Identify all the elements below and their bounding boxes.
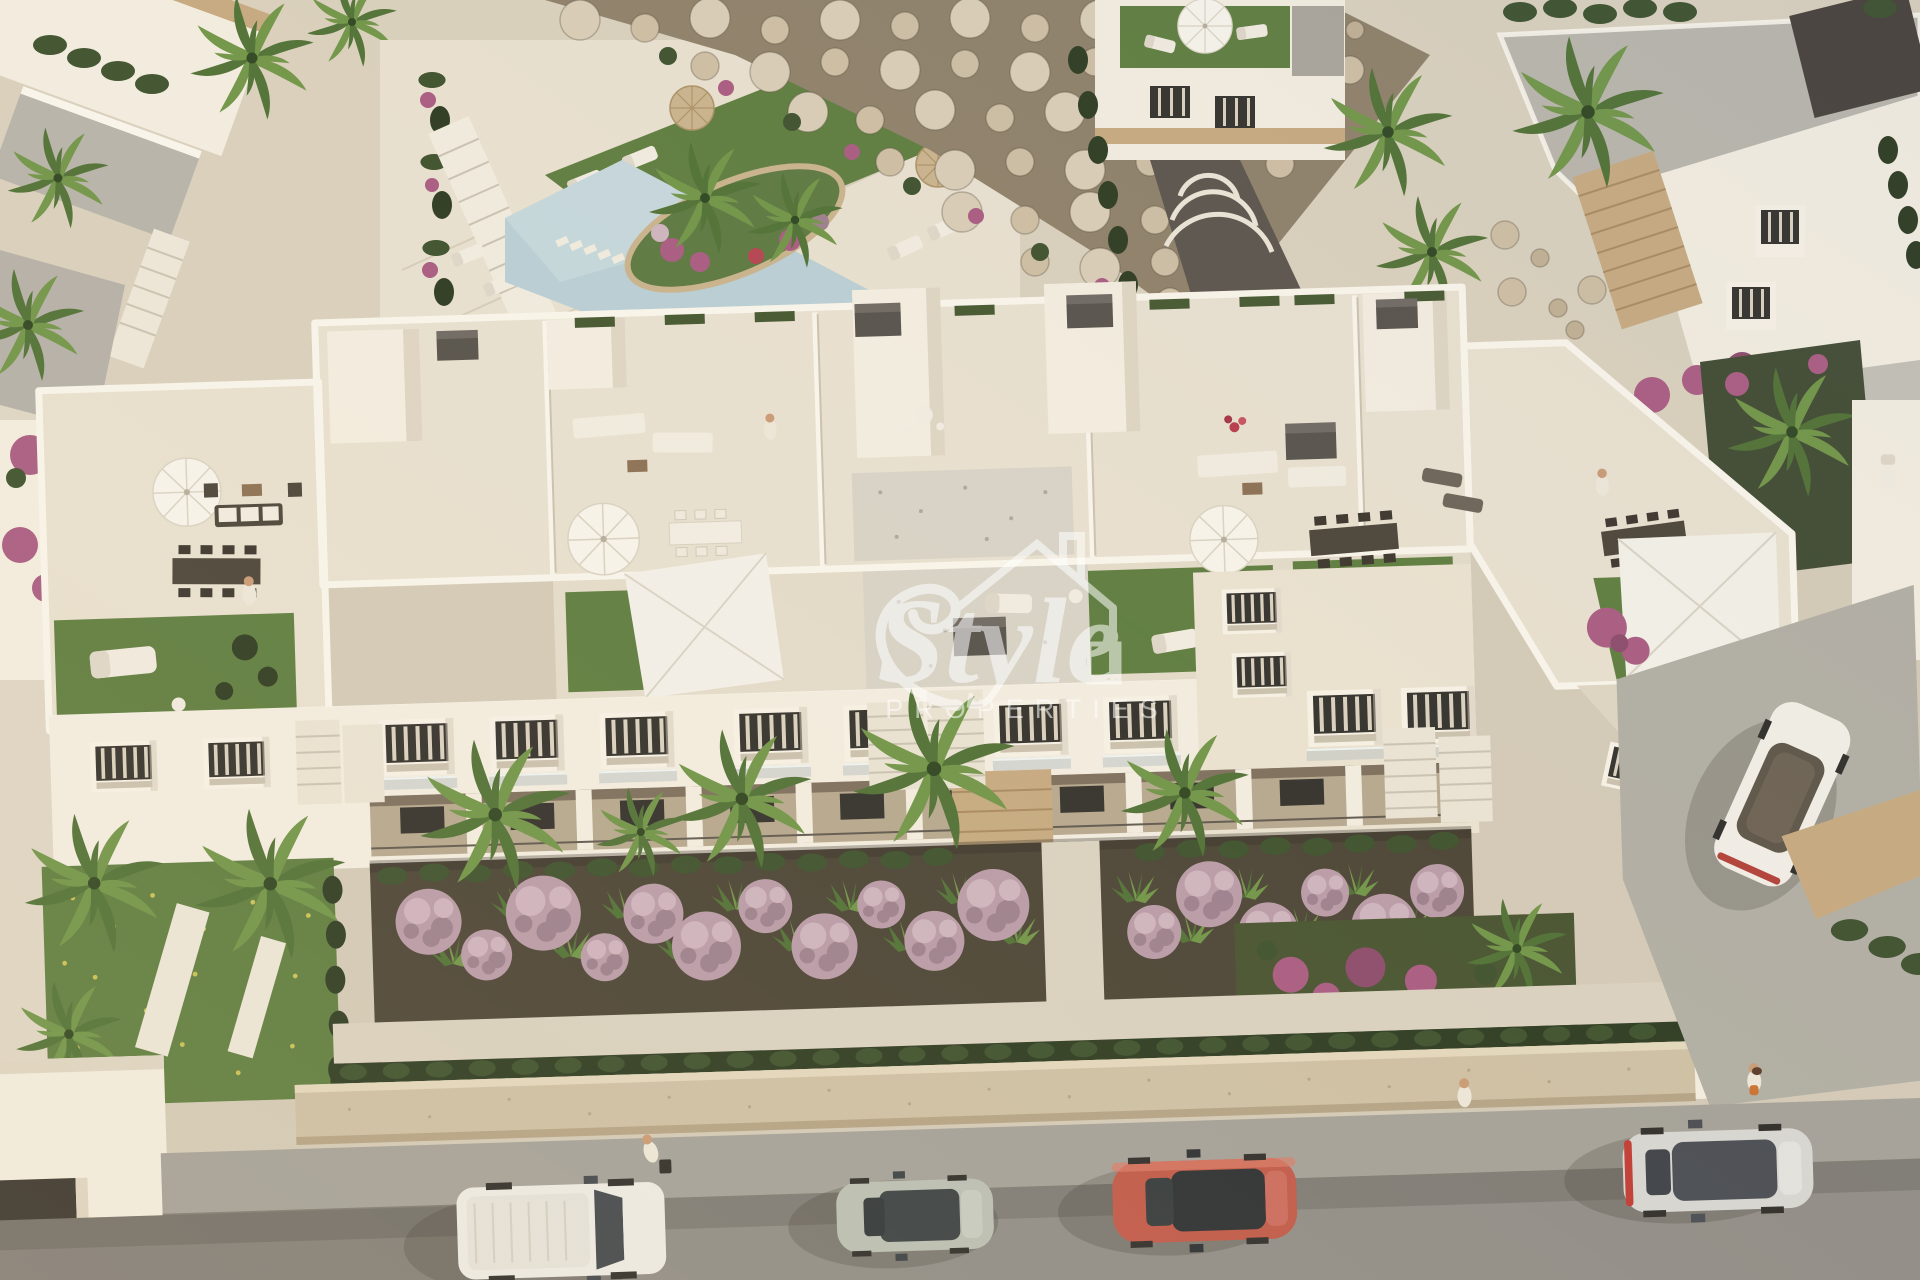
hedge: [67, 48, 101, 68]
ac-unit: [1285, 422, 1337, 460]
garden-path: [1041, 841, 1104, 1003]
glass-balustrade: [489, 772, 567, 786]
hedge: [135, 74, 169, 94]
white-parasol: [567, 502, 641, 576]
ac-unit: [1066, 294, 1113, 328]
sage-hatchback: [835, 1168, 995, 1262]
window: [1307, 689, 1383, 747]
villa-window: [1726, 282, 1776, 330]
window: [733, 707, 809, 765]
white-parasol: [1178, 0, 1232, 53]
window: [489, 714, 565, 772]
watermark-script-text: Style: [877, 574, 1121, 709]
window: [1222, 588, 1283, 635]
glass-balustrade: [993, 757, 1071, 771]
window: [379, 718, 455, 776]
window: [203, 737, 271, 789]
white-van: [456, 1173, 667, 1280]
ac-unit: [436, 330, 478, 361]
ac-unit: [854, 303, 901, 337]
glass-balustrade: [599, 769, 677, 783]
watermark-sub-text: PROPERTIES: [885, 694, 1169, 724]
glass-balustrade: [1307, 747, 1385, 761]
villa-window: [1755, 205, 1805, 257]
villa-window: [1150, 86, 1190, 118]
shade-sail: [624, 552, 785, 699]
villa-window: [1215, 96, 1255, 128]
window: [1232, 652, 1293, 699]
ac-unit: [1376, 298, 1418, 329]
aerial-render: Style PROPERTIES: [0, 0, 1920, 1280]
window: [599, 711, 675, 769]
hedge: [33, 35, 67, 55]
red-hatchback: [1111, 1146, 1298, 1255]
hedge: [101, 61, 135, 81]
white-parasol: [1189, 505, 1259, 575]
straw-parasol: [670, 86, 714, 130]
window: [90, 740, 158, 792]
